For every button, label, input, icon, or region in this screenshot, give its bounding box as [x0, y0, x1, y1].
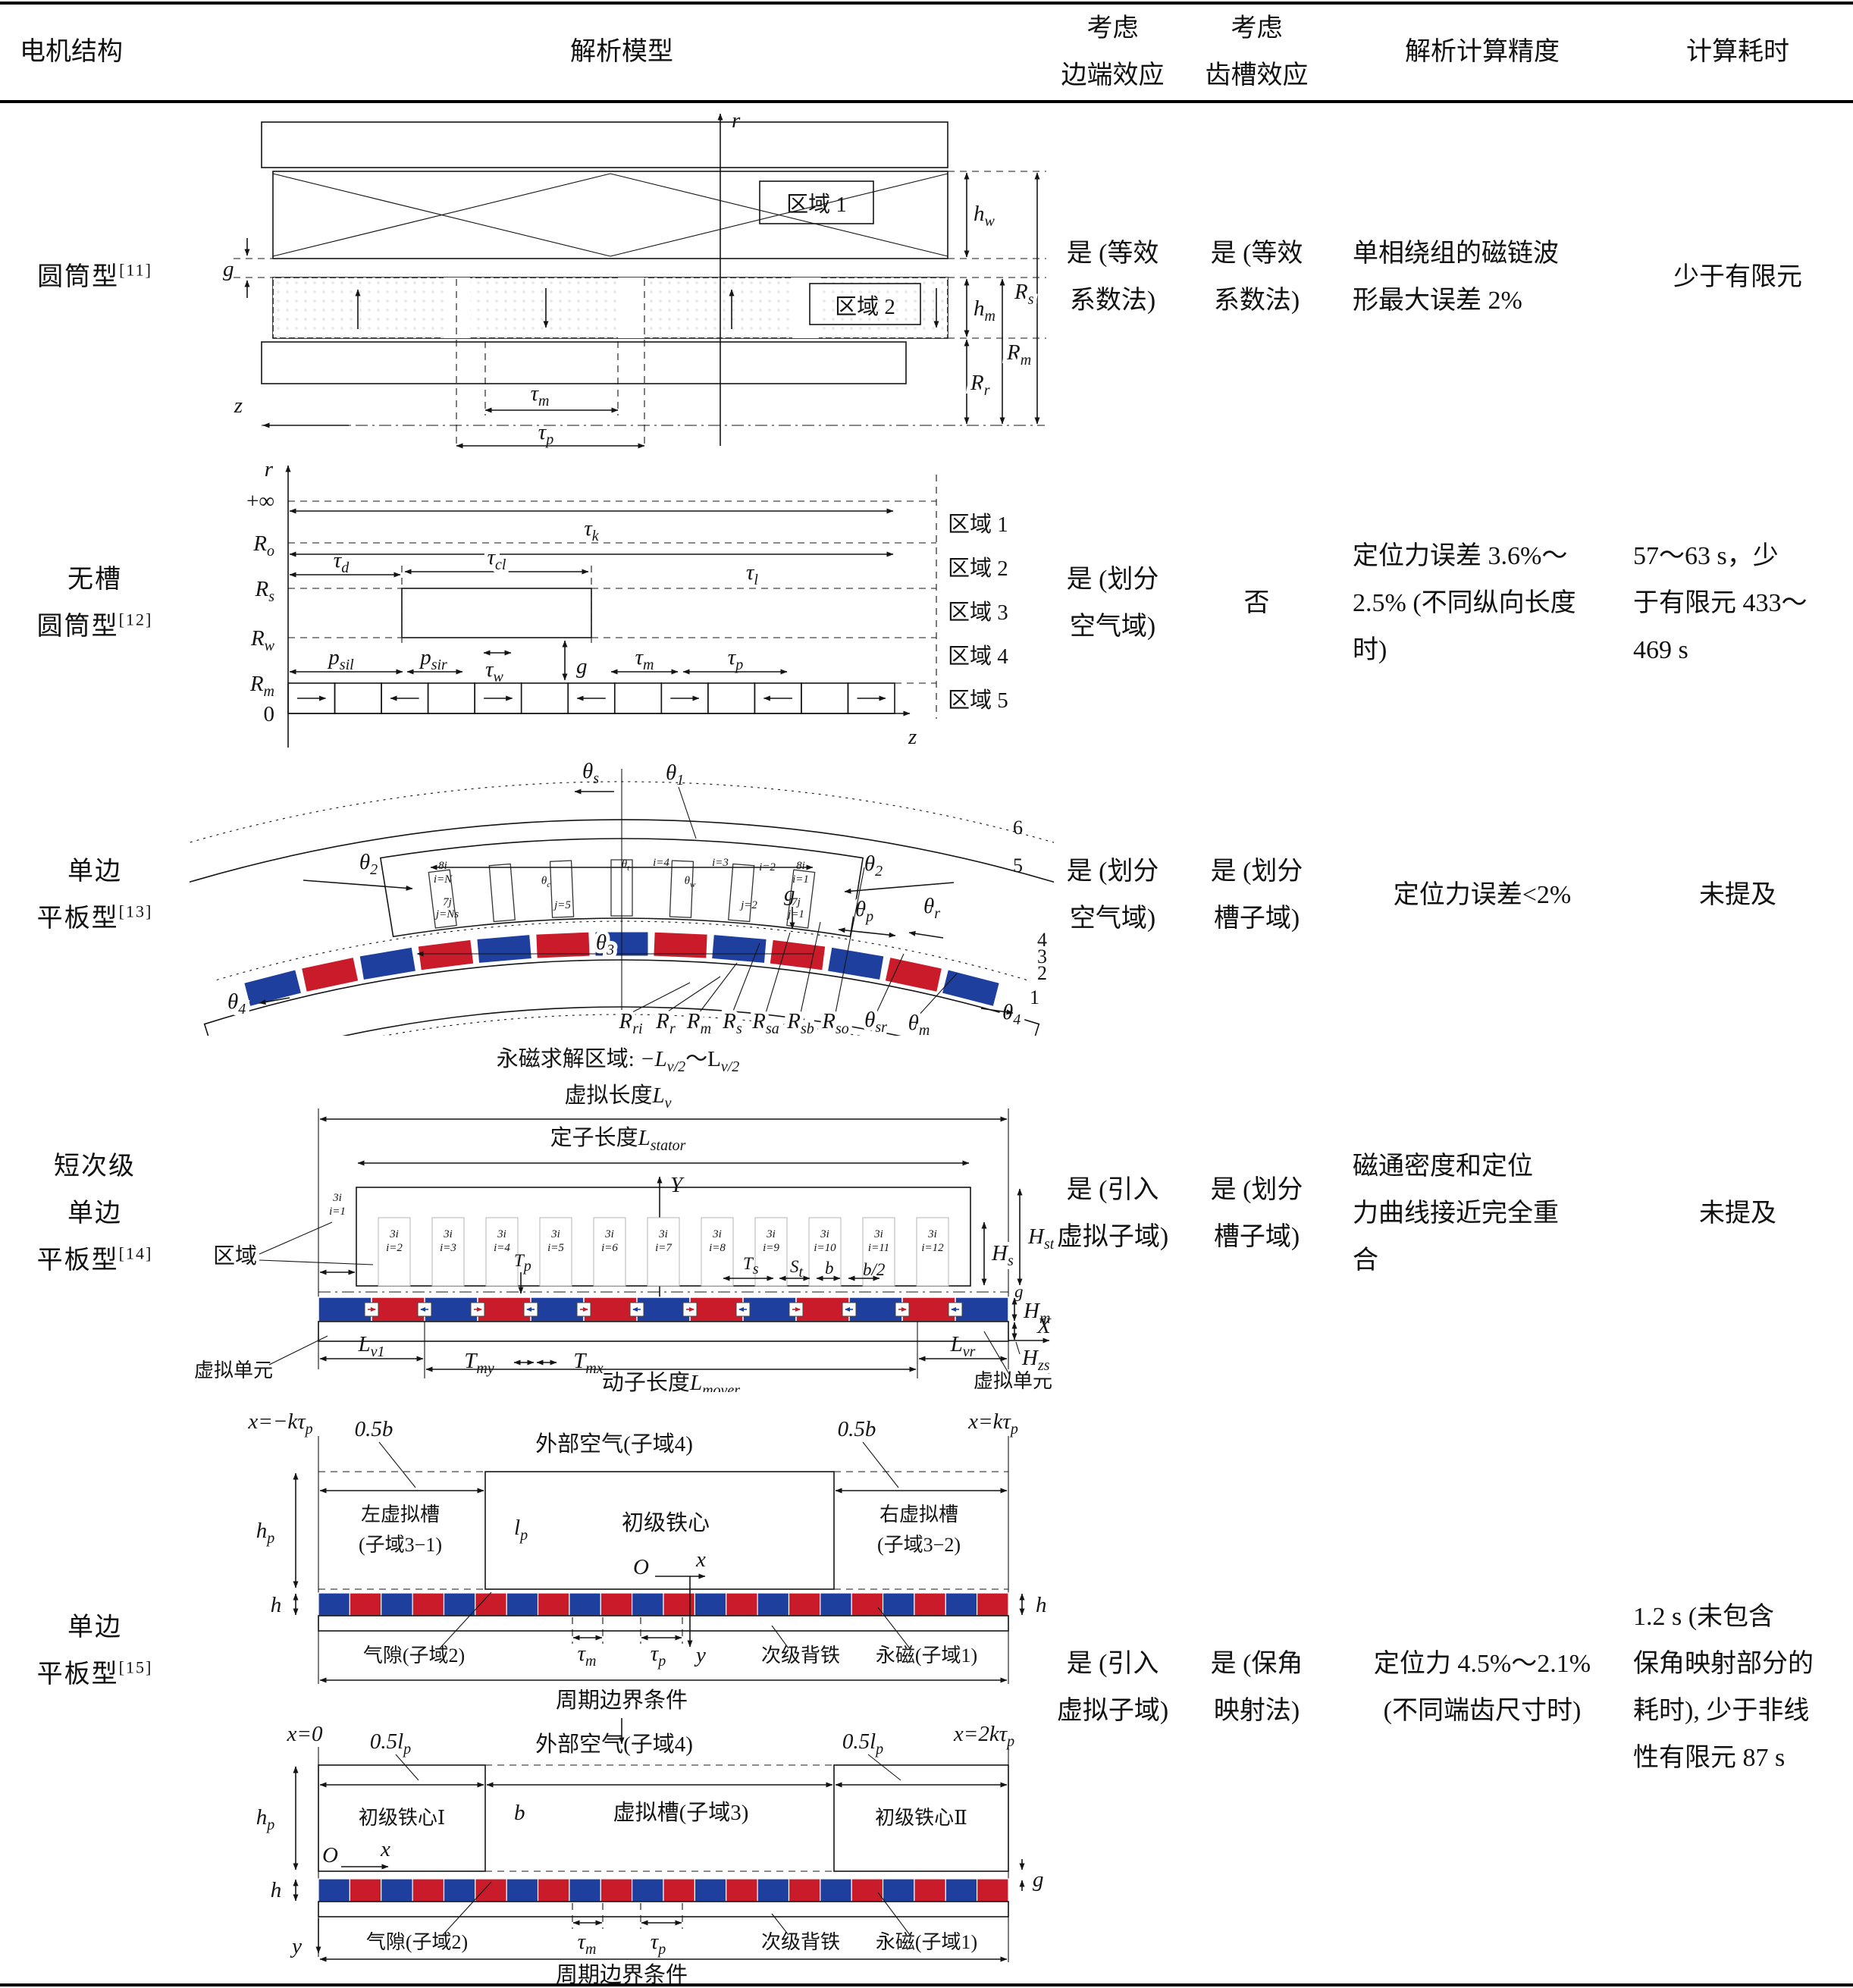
- svg-text:j=Ns: j=Ns: [434, 908, 459, 920]
- svg-text:次级背铁: 次级背铁: [761, 1645, 840, 1667]
- header-time: 计算耗时: [1623, 5, 1853, 103]
- svg-text:7j: 7j: [792, 896, 801, 908]
- svg-text:θ4: θ4: [1002, 1000, 1021, 1028]
- svg-text:3i: 3i: [604, 1228, 614, 1240]
- svg-text:区域 1: 区域 1: [948, 512, 1008, 537]
- svg-text:3i: 3i: [927, 1228, 937, 1240]
- svg-text:i=7: i=7: [655, 1242, 673, 1254]
- svg-text:g: g: [1033, 1867, 1044, 1892]
- svg-text:x: x: [380, 1837, 390, 1861]
- svg-text:Rs: Rs: [722, 1009, 742, 1036]
- r2-time: 57～63 s，少于有限元 433～469 s: [1623, 452, 1853, 755]
- bottom-dims: Lv1 Tmy Tmx 动子长度Lmover Lvr 虚拟单元 虚拟单元: [194, 1322, 1052, 1392]
- svg-text:x=2kτp: x=2kτp: [953, 1722, 1014, 1750]
- r3-time: 未提及: [1623, 755, 1853, 1036]
- svg-text:g: g: [1014, 1282, 1024, 1301]
- r3-slot-effect: 是 (划分槽子域): [1171, 755, 1342, 1036]
- flat-model-figure: x=−kτp 0.5b 外部空气(子域4) 0.5b x=kτp lp 初级铁心…: [190, 1392, 1054, 1983]
- svg-text:Rsa: Rsa: [751, 1009, 779, 1036]
- svg-text:j=5: j=5: [553, 899, 571, 911]
- r5-time: 1.2 s (未包含保角映射部分的耗时), 少于非线性有限元 87 s: [1623, 1392, 1853, 1983]
- svg-text:i=5: i=5: [547, 1242, 564, 1254]
- svg-text:θ1: θ1: [666, 760, 684, 789]
- header-accuracy: 解析计算精度: [1342, 5, 1623, 103]
- svg-text:(子域3−1): (子域3−1): [359, 1534, 442, 1556]
- svg-text:次级背铁: 次级背铁: [761, 1931, 840, 1953]
- svg-text:Hst: Hst: [1027, 1224, 1054, 1253]
- r5-accuracy: 定位力 4.5%～2.1%(不同端齿尺寸时): [1342, 1392, 1623, 1983]
- svg-text:虚拟槽(子域3): 虚拟槽(子域3): [613, 1800, 749, 1825]
- header-slot-effect: 考虑齿槽效应: [1171, 5, 1342, 103]
- r2-slot-effect: 否: [1171, 452, 1342, 755]
- svg-text:h: h: [271, 1878, 282, 1902]
- z-axis-label: z: [234, 394, 243, 418]
- paper-table-page: 电机结构 解析模型 考虑边端效应 考虑齿槽效应 解析计算精度 计算耗时 圆筒型[…: [0, 0, 1853, 1988]
- svg-text:永磁(子域1): 永磁(子域1): [876, 1931, 977, 1953]
- svg-text:(子域3−2): (子域3−2): [877, 1534, 961, 1556]
- hw-label: hw: [974, 202, 995, 230]
- svg-text:定子长度Lstator: 定子长度Lstator: [550, 1125, 686, 1154]
- svg-text:O: O: [633, 1555, 649, 1579]
- r4-slot-effect: 是 (划分槽子域): [1171, 1036, 1342, 1392]
- svg-text:τw: τw: [485, 657, 503, 685]
- svg-text:Y: Y: [670, 1173, 685, 1197]
- r4-accuracy: 磁通密度和定位力曲线接近完全重合: [1342, 1036, 1623, 1392]
- tau-m-label: τm: [531, 381, 550, 409]
- svg-text:初级铁心Ⅰ: 初级铁心Ⅰ: [359, 1807, 445, 1829]
- structure-short-secondary: 短次级 单边 平板型[14]: [0, 1036, 190, 1392]
- svg-text:y: y: [290, 1934, 302, 1958]
- svg-text:Rw: Rw: [250, 626, 275, 654]
- tau-p-label: τp: [538, 420, 553, 448]
- svg-text:Lv1: Lv1: [357, 1332, 384, 1360]
- structure-tubular: 圆筒型[11]: [0, 103, 190, 452]
- airgap-label: g: [223, 257, 234, 281]
- svg-text:τcl: τcl: [488, 545, 506, 573]
- svg-text:τk: τk: [584, 516, 599, 544]
- upper-model: x=−kτp 0.5b 外部空气(子域4) 0.5b x=kτp lp 初级铁心…: [247, 1409, 1046, 1713]
- r4-time: 未提及: [1623, 1036, 1853, 1392]
- svg-text:外部空气(子域4): 外部空气(子域4): [535, 1732, 693, 1757]
- svg-text:0: 0: [264, 702, 275, 726]
- dims: τk τl τd τcl psil psir τw g τm: [290, 511, 893, 685]
- svg-text:τm: τm: [635, 645, 654, 673]
- svg-text:θ4: θ4: [227, 989, 246, 1018]
- svg-text:j=1: j=1: [786, 908, 804, 920]
- svg-text:x=−kτp: x=−kτp: [247, 1409, 312, 1438]
- comparison-table: 电机结构 解析模型 考虑边端效应 考虑齿槽效应 解析计算精度 计算耗时 圆筒型[…: [0, 2, 1853, 1986]
- arc-labels: θs θ1 θ2 θ2 g θp θr θ3 θ4 θ4: [227, 759, 1047, 1036]
- svg-text:周期边界条件: 周期边界条件: [556, 1962, 688, 1983]
- svg-text:3i: 3i: [497, 1228, 506, 1240]
- svg-text:j=2: j=2: [739, 899, 757, 911]
- svg-text:i=3: i=3: [712, 857, 729, 869]
- svg-text:Rm: Rm: [686, 1009, 711, 1036]
- svg-text:+∞: +∞: [246, 489, 274, 513]
- svg-text:周期边界条件: 周期边界条件: [556, 1688, 688, 1713]
- mover: [318, 1292, 1008, 1341]
- svg-text:虚拟长度Lv: 虚拟长度Lv: [564, 1083, 671, 1112]
- hm-label: hm: [974, 296, 995, 325]
- svg-text:动子长度Lmover: 动子长度Lmover: [602, 1370, 740, 1392]
- diagram-slotless-tubular: r +∞ Ro Rs Rw Rm 0 z 区域 1 区域 2 区域 3 区域 4: [190, 452, 1054, 755]
- svg-text:τp: τp: [651, 1642, 666, 1670]
- svg-text:i=10: i=10: [814, 1242, 836, 1254]
- r1-end-effect: 是 (等效系数法): [1054, 103, 1171, 452]
- svg-text:3i: 3i: [332, 1192, 342, 1204]
- svg-text:τl: τl: [746, 560, 758, 588]
- svg-text:Hzs: Hzs: [1021, 1346, 1050, 1374]
- svg-text:3i: 3i: [658, 1228, 668, 1240]
- svg-text:3i: 3i: [820, 1228, 829, 1240]
- svg-text:3i: 3i: [873, 1228, 883, 1240]
- svg-text:h: h: [1036, 1593, 1047, 1617]
- svg-text:i=4: i=4: [653, 857, 669, 869]
- svg-text:3i: 3i: [443, 1228, 453, 1240]
- r-axis-label: r: [732, 108, 741, 133]
- r1-slot-effect: 是 (等效系数法): [1171, 103, 1342, 452]
- svg-text:Hs: Hs: [991, 1241, 1014, 1269]
- svg-text:区域 4: 区域 4: [948, 644, 1008, 669]
- svg-text:i=2: i=2: [386, 1242, 403, 1254]
- svg-text:τp: τp: [651, 1930, 666, 1958]
- r3-accuracy: 定位力误差<2%: [1342, 755, 1623, 1036]
- svg-text:psir: psir: [419, 645, 447, 673]
- svg-text:θ2: θ2: [359, 850, 378, 878]
- svg-text:Rsb: Rsb: [786, 1009, 814, 1036]
- slotless-model-figure: r +∞ Ro Rs Rw Rm 0 z 区域 1 区域 2 区域 3 区域 4: [190, 452, 1054, 755]
- svg-text:i=1: i=1: [792, 873, 809, 886]
- svg-text:τm: τm: [578, 1642, 597, 1670]
- svg-text:τm: τm: [578, 1930, 597, 1958]
- svg-text:τp: τp: [728, 645, 743, 673]
- svg-text:i=N: i=N: [434, 873, 453, 886]
- svg-text:i=6: i=6: [601, 1242, 618, 1254]
- svg-text:b: b: [825, 1259, 834, 1278]
- r2-accuracy: 定位力误差 3.6%～2.5% (不同纵向长度时): [1342, 452, 1623, 755]
- svg-text:h: h: [271, 1593, 282, 1617]
- svg-text:5: 5: [1013, 854, 1023, 876]
- r5-slot-effect: 是 (保角映射法): [1171, 1392, 1342, 1983]
- svg-text:θc: θc: [541, 875, 550, 889]
- svg-text:lp: lp: [514, 1516, 528, 1544]
- svg-text:i=9: i=9: [763, 1242, 779, 1254]
- header-end-effect: 考虑边端效应: [1054, 5, 1171, 103]
- tubular-structure: 区域 1 区域 2: [262, 122, 948, 384]
- svg-text:r: r: [265, 457, 274, 481]
- svg-text:区域 2: 区域 2: [948, 556, 1008, 581]
- svg-text:0.5lp: 0.5lp: [842, 1729, 883, 1758]
- svg-text:g: g: [576, 654, 588, 679]
- arc-model-figure: θs θ1 θ2 θ2 g θp θr θ3 θ4 θ4: [190, 755, 1054, 1036]
- region1-label: 区域 1: [786, 192, 847, 217]
- r5-end-effect: 是 (引入虚拟子域): [1054, 1392, 1171, 1983]
- header-structure: 电机结构: [0, 5, 190, 103]
- svg-text:psil: psil: [327, 645, 354, 673]
- svg-text:Lvr: Lvr: [950, 1332, 976, 1360]
- svg-text:2: 2: [1037, 962, 1047, 984]
- svg-text:i=12: i=12: [921, 1242, 944, 1254]
- short-secondary-figure: 永磁求解区域: −Lv/2～Lv/2 虚拟长度Lv 定子长度Lstator Y …: [190, 1036, 1054, 1392]
- svg-text:hp: hp: [256, 1805, 275, 1833]
- svg-text:y: y: [694, 1643, 706, 1667]
- svg-text:7j: 7j: [443, 896, 452, 908]
- svg-text:Rr: Rr: [655, 1009, 676, 1036]
- diagram-arc-flat: θs θ1 θ2 θ2 g θp θr θ3 θ4 θ4: [190, 755, 1054, 1036]
- svg-text:区域 5: 区域 5: [948, 688, 1008, 713]
- diagram-flat-15: x=−kτp 0.5b 外部空气(子域4) 0.5b x=kτp lp 初级铁心…: [190, 1392, 1054, 1983]
- svg-text:z: z: [908, 725, 917, 749]
- svg-text:St: St: [790, 1257, 804, 1281]
- svg-text:Rri: Rri: [618, 1009, 642, 1036]
- Ro-label: Ro: [252, 531, 274, 560]
- Rm-label: Rm: [1006, 340, 1031, 368]
- svg-text:x=kτp: x=kτp: [967, 1409, 1018, 1438]
- svg-text:Tmy: Tmy: [464, 1349, 494, 1377]
- svg-text:Rso: Rso: [821, 1009, 849, 1036]
- structure-slotless-tubular: 无槽 圆筒型[12]: [0, 452, 190, 755]
- stator: 3ii=23ii=33ii=43ii=53ii=63ii=73ii=83ii=9…: [213, 1187, 970, 1293]
- header-model: 解析模型: [190, 5, 1054, 103]
- magnet-array: [288, 683, 895, 713]
- svg-text:气隙(子域2): 气隙(子域2): [363, 1645, 465, 1667]
- svg-text:8i: 8i: [796, 860, 805, 872]
- svg-text:θsr: θsr: [864, 1008, 887, 1036]
- svg-text:O: O: [322, 1843, 338, 1867]
- svg-text:hp: hp: [256, 1519, 275, 1547]
- svg-text:3i: 3i: [550, 1228, 560, 1240]
- lower-model: x=0 0.5lp 外部空气(子域4) 0.5lp x=2kτp 初级铁心Ⅰ b…: [256, 1722, 1044, 1983]
- svg-text:θr: θr: [923, 894, 940, 922]
- svg-text:τd: τd: [334, 548, 350, 576]
- svg-text:x=0: x=0: [287, 1722, 323, 1746]
- svg-text:1: 1: [1030, 986, 1039, 1008]
- svg-text:区域 3: 区域 3: [948, 600, 1008, 625]
- svg-text:3i: 3i: [712, 1228, 722, 1240]
- svg-text:Rm: Rm: [249, 672, 274, 700]
- svg-text:b/2: b/2: [863, 1260, 885, 1279]
- Rr-label: Rr: [970, 371, 990, 399]
- svg-text:虚拟单元: 虚拟单元: [194, 1359, 273, 1381]
- svg-text:气隙(子域2): 气隙(子域2): [366, 1931, 468, 1953]
- svg-text:永磁求解区域: −Lv/2～Lv/2: 永磁求解区域: −Lv/2～Lv/2: [497, 1046, 740, 1075]
- svg-text:i=11: i=11: [868, 1242, 889, 1254]
- r3-end-effect: 是 (划分空气域): [1054, 755, 1171, 1036]
- svg-text:左虚拟槽: 左虚拟槽: [361, 1504, 440, 1525]
- r4-end-effect: 是 (引入虚拟子域): [1054, 1036, 1171, 1392]
- region2-label: 区域 2: [835, 294, 895, 319]
- svg-text:永磁(子域1): 永磁(子域1): [876, 1645, 977, 1667]
- svg-text:3i: 3i: [389, 1228, 399, 1240]
- structure-single-flat-13: 单边 平板型[13]: [0, 755, 190, 1036]
- svg-text:初级铁心Ⅱ: 初级铁心Ⅱ: [875, 1807, 967, 1829]
- svg-text:i=8: i=8: [709, 1242, 726, 1254]
- diagram-tubular: 区域 1 区域 2 r z g τm: [190, 103, 1054, 452]
- svg-text:i=3: i=3: [440, 1242, 456, 1254]
- svg-text:0.5lp: 0.5lp: [370, 1729, 411, 1758]
- svg-text:Tmx: Tmx: [573, 1349, 604, 1377]
- structure-single-flat-15: 单边 平板型[15]: [0, 1392, 190, 1983]
- svg-text:区域: 区域: [213, 1243, 257, 1268]
- svg-text:外部空气(子域4): 外部空气(子域4): [535, 1431, 693, 1457]
- svg-text:i=1: i=1: [329, 1206, 346, 1218]
- svg-text:右虚拟槽: 右虚拟槽: [879, 1504, 958, 1525]
- right-dims: Hs Hst g Hm X Hzs: [984, 1189, 1054, 1374]
- svg-text:初级铁心: 初级铁心: [622, 1510, 710, 1535]
- svg-text:Rs: Rs: [254, 577, 274, 605]
- svg-text:i=4: i=4: [494, 1242, 510, 1254]
- diagram-short-secondary: 永磁求解区域: −Lv/2～Lv/2 虚拟长度Lv 定子长度Lstator Y …: [190, 1036, 1054, 1392]
- r2-end-effect: 是 (划分空气域): [1054, 452, 1171, 755]
- svg-text:3i: 3i: [766, 1228, 776, 1240]
- svg-text:0.5b: 0.5b: [838, 1417, 876, 1441]
- svg-text:X: X: [1036, 1314, 1052, 1338]
- svg-text:8i: 8i: [438, 860, 447, 872]
- r1-accuracy: 单相绕组的磁链波形最大误差 2%: [1342, 103, 1623, 452]
- svg-text:b: b: [514, 1801, 525, 1825]
- svg-text:i=2: i=2: [759, 861, 776, 873]
- svg-text:x: x: [695, 1547, 706, 1572]
- tubular-model-figure: 区域 1 区域 2 r z g τm: [190, 103, 1054, 452]
- r1-time: 少于有限元: [1623, 103, 1853, 452]
- svg-text:θ2: θ2: [864, 851, 883, 880]
- svg-text:θm: θm: [908, 1011, 930, 1036]
- svg-text:6: 6: [1013, 817, 1023, 839]
- Rs-label: Rs: [1014, 280, 1034, 308]
- svg-text:0.5b: 0.5b: [355, 1417, 393, 1441]
- svg-text:θs: θs: [582, 759, 599, 787]
